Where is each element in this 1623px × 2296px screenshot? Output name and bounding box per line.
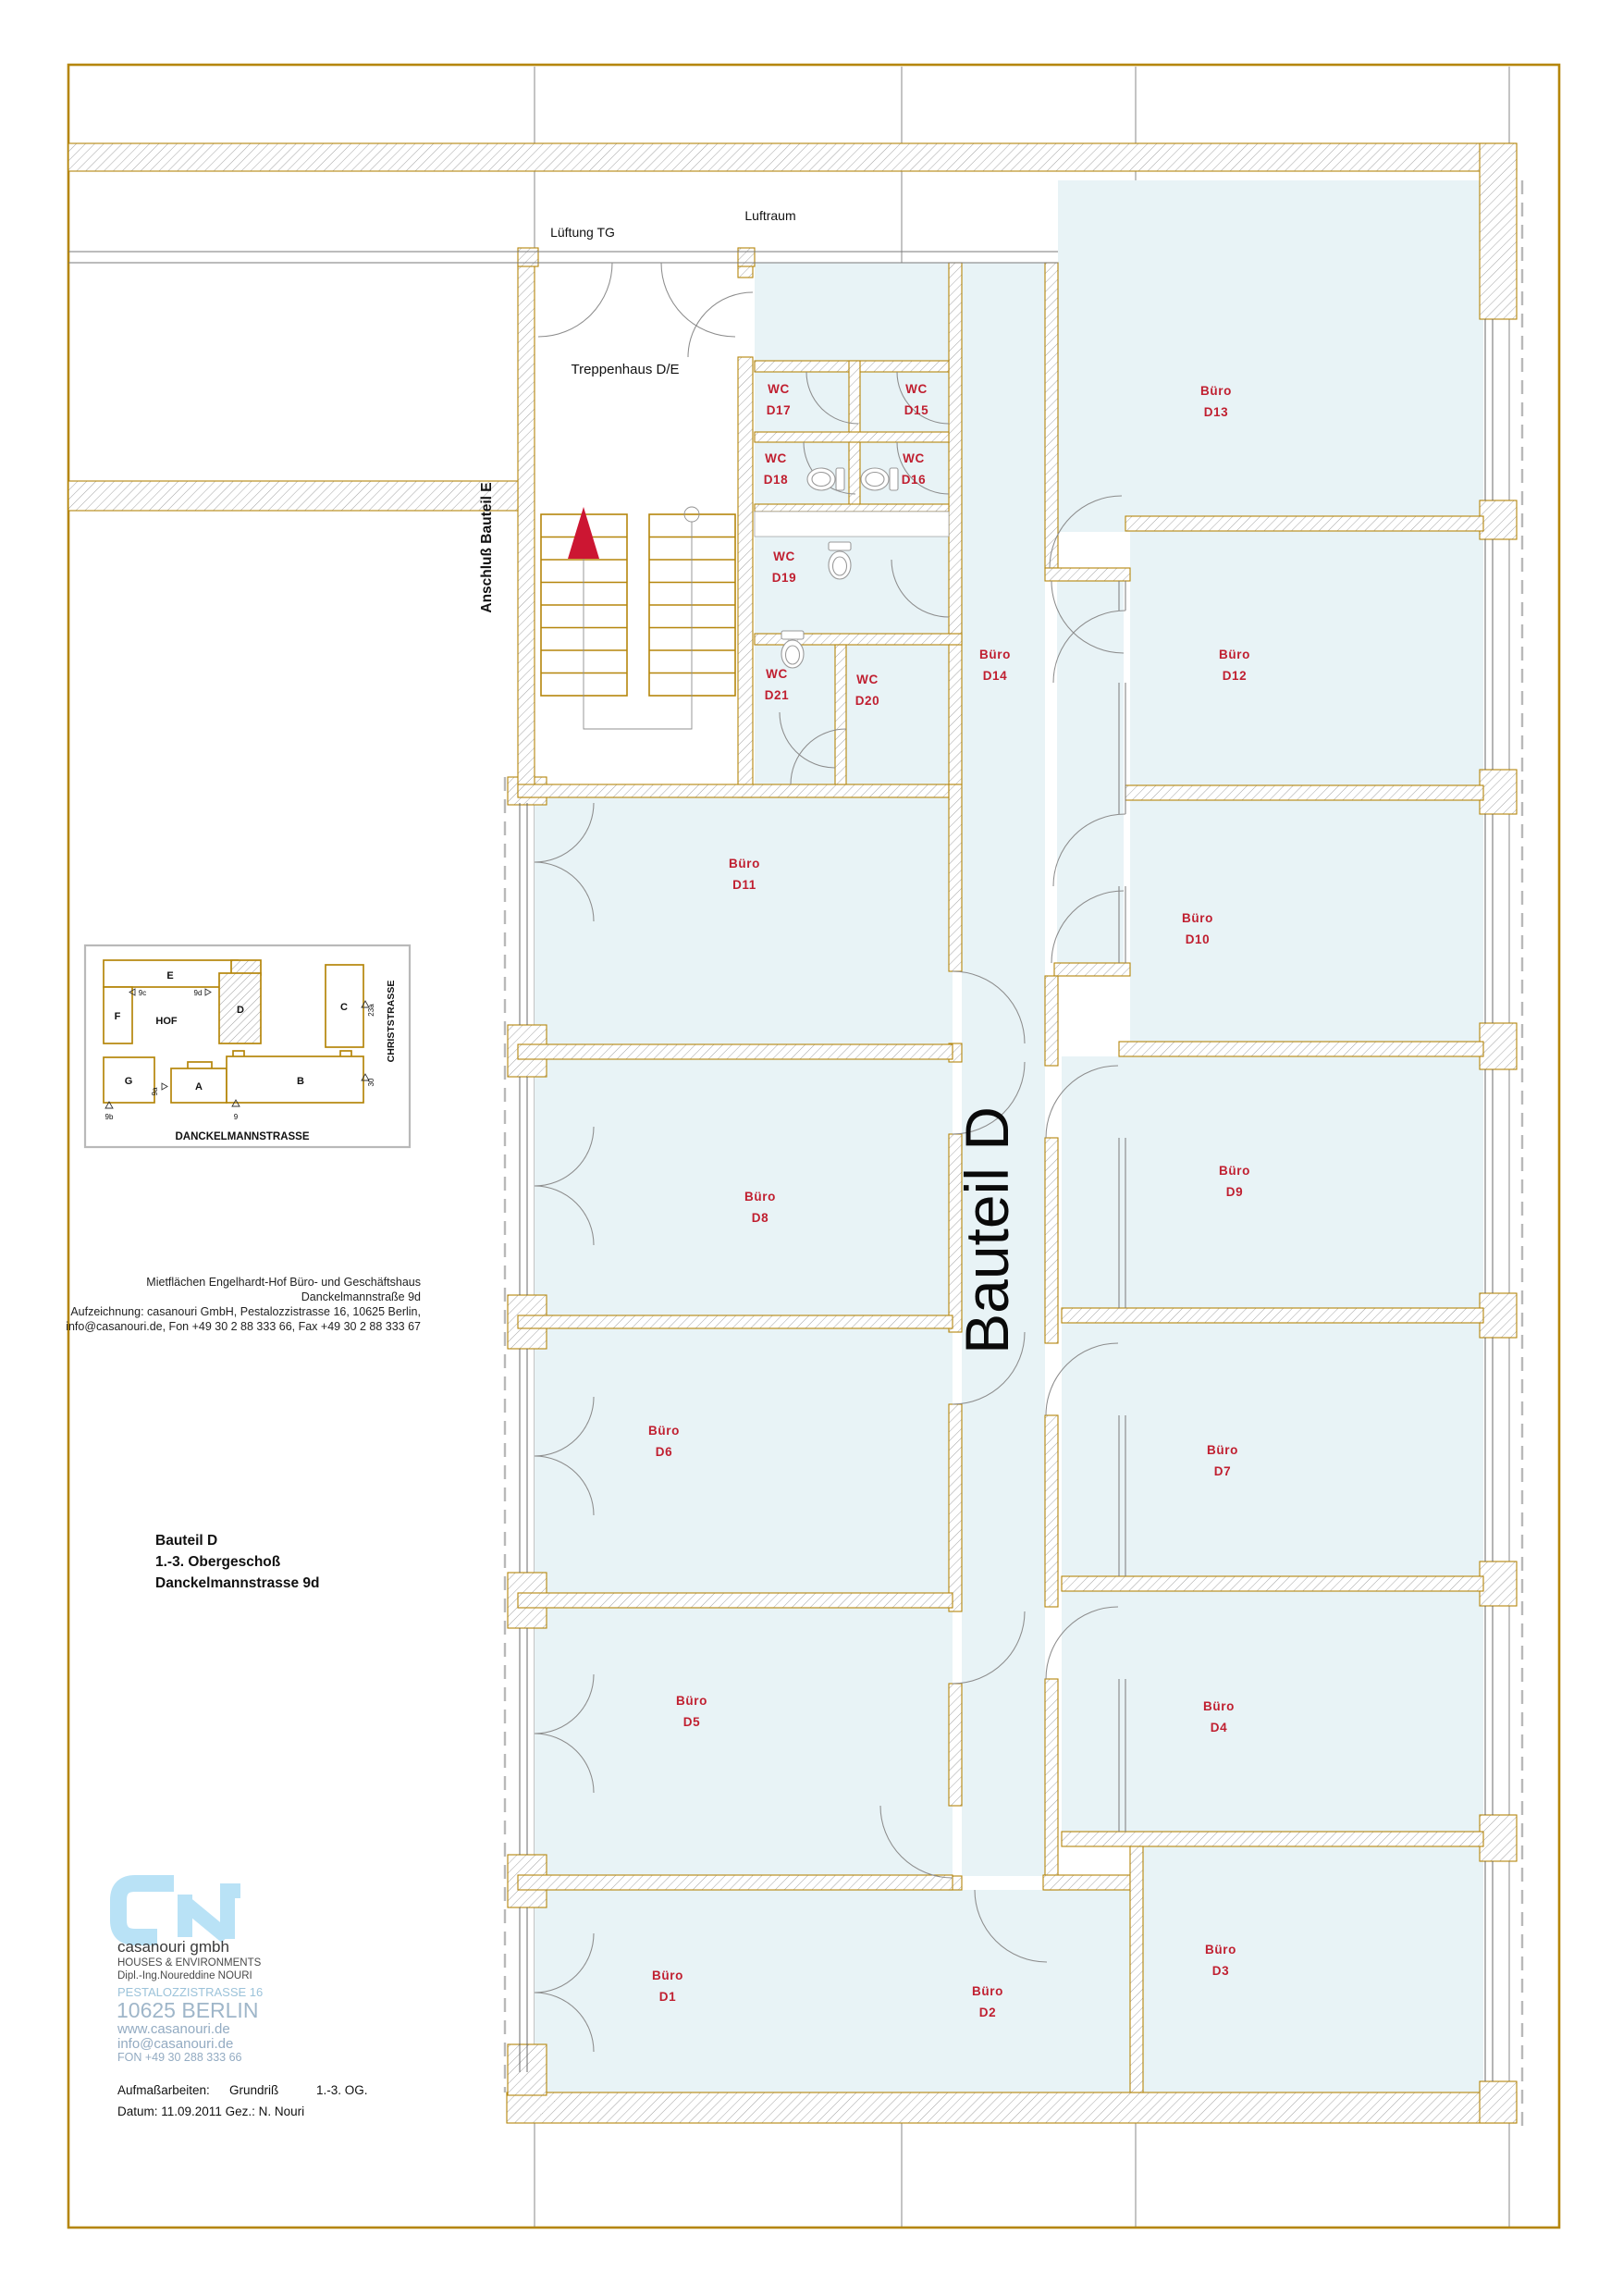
key-plan-street-danckelmannstrasse: DANCKELMANNSTRASSE [175,1131,309,1142]
wall-segment [1045,1679,1058,1890]
wall-segment [1119,1042,1483,1056]
toilet-wc-d19 [829,542,851,579]
footer-datum: Datum: 11.09.2011 Gez.: N. Nouri [117,2105,304,2118]
key-plan-label-G: G [125,1076,133,1087]
address-line-4: info@casanouri.de, Fon +49 30 2 88 333 6… [66,1320,421,1333]
key-plan-marker-9c: 9c [139,989,146,997]
key-plan-label-C: C [340,1002,348,1013]
company-tagline: HOUSES & ENVIRONMENTS [117,1957,262,1969]
wall-segment [738,357,753,797]
key-plan-label-D: D [237,1005,244,1016]
fill-rooms-D9-D7-D4 [1062,1056,1483,1832]
wall-segment [1062,1308,1483,1323]
key-plan-building-D [219,960,261,1043]
wall-segment [68,143,1517,171]
address-line-1: Mietflächen Engelhardt-Hof Büro- und Ges… [146,1276,421,1289]
wall-segment [949,263,962,784]
wall-segment [518,263,535,797]
wall-segment [1480,1023,1517,1069]
wall-segment [1480,143,1517,319]
staircase [541,507,735,729]
wall-segment [738,248,755,266]
footer-aufmass-label: Aufmaßarbeiten: [117,2083,210,2097]
heading-obergeschoss: 1.-3. Obergeschoß [155,1554,281,1570]
wall-segment [1480,1562,1517,1606]
label-anschluss-bauteil-e: Anschluß Bauteil E [479,482,495,612]
drawing-sheet: BüroD1BüroD2BüroD3BüroD4BüroD5BüroD6Büro… [0,0,1623,2296]
wall-segment [1045,568,1130,581]
wall-segment [68,481,518,511]
wall-segment [1480,1815,1517,1861]
key-plan: E F D C G A B HOF DANCKELMANNSTRASSE CHR… [85,945,410,1147]
heading-bauteil-d: Bauteil D [155,1533,217,1549]
footer-og: 1.-3. OG. [316,2083,368,2097]
company-web: www.casanouri.de [117,2021,230,2037]
company-street: PESTALOZZISTRASSE 16 [117,1985,263,1999]
key-plan-marker-9d: 9d [194,989,203,997]
key-plan-marker-9a: 9a [151,1087,159,1095]
wall-segment [949,784,962,971]
company-email: info@casanouri.de [117,2036,233,2052]
wall-segment [1045,263,1058,568]
wall-segment [1043,1875,1130,1890]
key-plan-marker-9b: 9b [105,1113,114,1121]
fill-corridor-wide [1057,581,1124,963]
wall-segment [1480,2081,1517,2123]
key-plan-label-A: A [195,1081,203,1092]
wall-segment [1062,1576,1483,1591]
fill-room-D3 [1136,1846,1483,2092]
wall-segment [518,248,538,266]
wall-segment [755,504,949,512]
casanouri-logo [118,1883,240,1939]
wall-segment [1125,516,1483,531]
wall-segment [1480,500,1517,539]
wall-segment [1045,1415,1058,1607]
door-arc [688,292,753,357]
label-luftraum: Luftraum [744,208,795,223]
title-block: Mietflächen Engelhardt-Hof Büro- und Ges… [66,1276,421,2118]
wall-segment [1054,963,1130,976]
company-owner: Dipl.-Ing.Noureddine NOURI [117,1970,252,1981]
label-bauteil-d-corridor: Bauteil D [953,1106,1021,1354]
wall-segment [518,784,949,797]
wall-segment [518,1593,953,1608]
toilet-wc-d18 [807,468,844,490]
label-lueftung-tg: Lüftung TG [550,225,615,240]
footer-grundriss: Grundriß [229,2083,278,2097]
company-name: casanouri gmbh [117,1938,229,1956]
key-plan-street-christstrasse: CHRISTSTRASSE [386,981,397,1063]
key-plan-marker-30: 30 [367,1078,375,1086]
door-arc [661,263,735,337]
company-phone: FON +49 30 288 333 66 [117,2051,242,2064]
floor-plan-svg: BüroD1BüroD2BüroD3BüroD4BüroD5BüroD6Büro… [0,0,1623,2296]
wall-segment [1480,1293,1517,1338]
wall-segment [949,1684,962,1806]
fill-room-D13 [1058,180,1483,532]
wall-segment [1125,785,1483,800]
door-arc [538,263,612,337]
stair-guide-line [584,522,692,729]
fill-room-D2 [902,1890,1130,2092]
wall-segment [755,432,949,442]
fill-rooms-left-column [535,797,953,2092]
toilet-wc-d21 [781,631,804,668]
heading-strasse: Danckelmannstrasse 9d [155,1575,319,1591]
key-plan-label-E: E [166,970,173,981]
key-plan-marker-9: 9 [234,1113,239,1121]
address-line-3: Aufzeichnung: casanouri GmbH, Pestalozzi… [70,1305,421,1318]
wall-segment [507,2092,1517,2123]
key-plan-building-B [227,1056,363,1103]
wall-segment [1045,976,1058,1066]
shaft-strip [755,512,949,537]
wall-segment [1130,1846,1143,2092]
wall-segment [835,645,846,784]
wall-segment [518,1875,953,1890]
key-plan-label-hof: HOF [155,1016,178,1027]
key-plan-marker-23a: 23a [367,1004,375,1017]
address-line-2: Danckelmannstraße 9d [301,1290,421,1303]
key-plan-label-B: B [297,1076,304,1087]
label-treppenhaus: Treppenhaus D/E [571,362,679,377]
wall-segment [518,1315,953,1328]
company-city: 10625 BERLIN [117,1998,258,2022]
key-plan-label-F: F [115,1011,121,1022]
wall-segment [518,1044,953,1059]
wall-segment [1062,1832,1483,1846]
wall-segment [949,1404,962,1611]
wall-segment [1045,1138,1058,1343]
wall-segment [1480,770,1517,814]
toilet-wc-d16 [861,468,898,490]
fill-corridor [962,263,1045,1876]
